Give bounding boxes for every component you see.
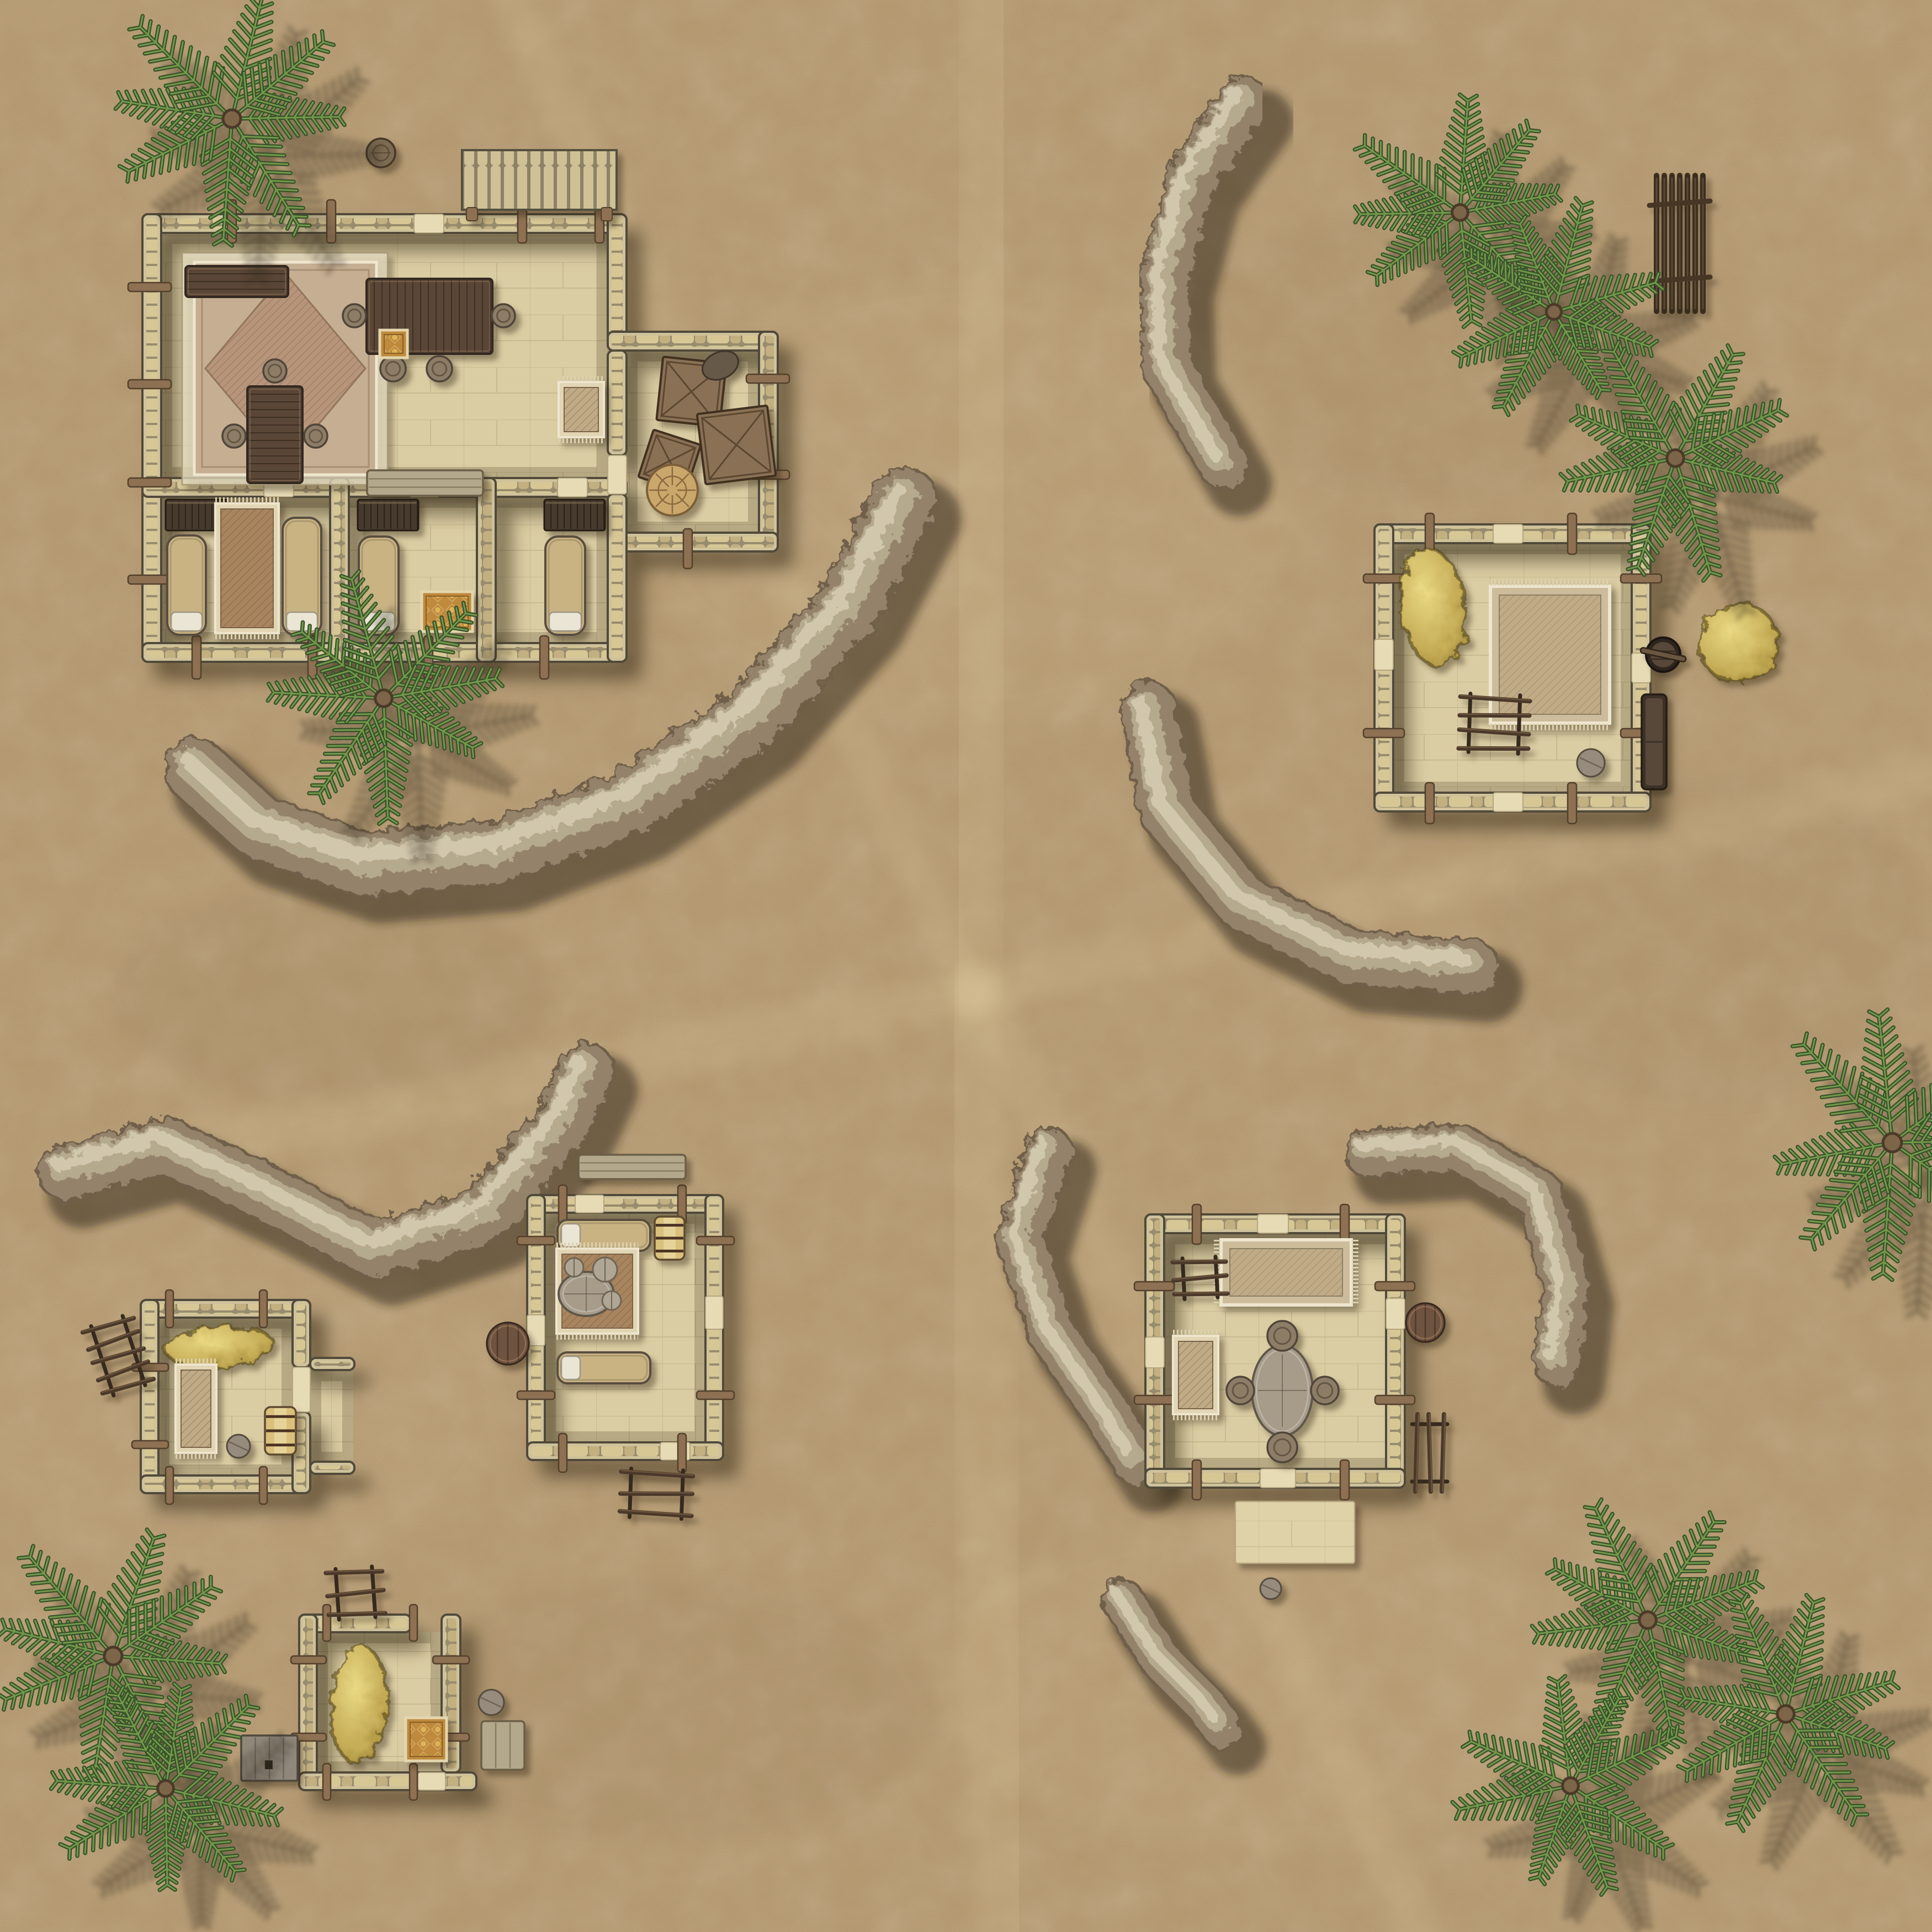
round-basket [647, 465, 698, 516]
chair [263, 359, 286, 383]
wall-segment [310, 1462, 354, 1474]
door-sill [1386, 1298, 1405, 1329]
wood-beam [1192, 1460, 1201, 1500]
wall-segment [299, 1615, 317, 1790]
chair [1267, 1432, 1297, 1462]
wood-beam [746, 374, 789, 383]
bed [545, 537, 585, 635]
wood-beam [1363, 574, 1404, 583]
wood-beam [559, 1185, 567, 1224]
wood-beam [323, 1764, 331, 1800]
wall-segment [608, 214, 627, 351]
cushion [593, 1257, 617, 1282]
stone-seat [479, 1690, 504, 1715]
door-sill [1374, 639, 1393, 670]
chair [492, 304, 515, 327]
large-rug [1217, 1240, 1355, 1305]
wood-beam [433, 1656, 469, 1664]
wall-shelf [544, 500, 605, 530]
wood-beam [259, 1467, 267, 1504]
fence-section [1412, 1414, 1447, 1492]
wall-segment [330, 478, 349, 662]
bench [367, 470, 483, 496]
crate [697, 406, 776, 485]
wood-beam [166, 1290, 173, 1328]
wood-beam [128, 575, 171, 584]
wall-segment [1386, 1214, 1405, 1488]
door-sill [414, 214, 444, 233]
wood-beam [540, 636, 549, 679]
door-sill [558, 478, 587, 497]
chair [222, 424, 246, 448]
large-rug [1490, 582, 1610, 727]
bench [481, 1721, 524, 1770]
chair [304, 424, 327, 448]
door-sill [527, 1315, 545, 1346]
door-sill [1260, 1469, 1296, 1488]
bench [578, 1155, 686, 1179]
chair [1267, 1321, 1297, 1351]
dwelling-south-doorways [418, 1772, 445, 1790]
dwelling-west-doorways [293, 1367, 310, 1412]
stone-patio [1235, 1501, 1355, 1563]
cushion [602, 1291, 621, 1310]
oval-stone-table [1252, 1345, 1313, 1436]
wall-segment [527, 1442, 723, 1460]
door-sill [293, 1367, 310, 1412]
wood-beam [1568, 513, 1577, 554]
chair [427, 356, 452, 381]
small-square-rug [380, 330, 407, 358]
round-table [1406, 1303, 1445, 1342]
bed [167, 535, 206, 635]
door-sill [1257, 1214, 1288, 1233]
wall-segment [608, 332, 778, 351]
head-table [185, 266, 288, 297]
bed [558, 1352, 650, 1383]
door-sill [1493, 793, 1523, 811]
wood-beam [1340, 1460, 1349, 1500]
wood-beam [1621, 574, 1662, 583]
trough [1642, 694, 1666, 789]
chair [380, 356, 406, 381]
wood-beam [1192, 1204, 1201, 1244]
wood-beam [192, 636, 201, 679]
wooden-rack [1172, 1256, 1228, 1300]
wall-segment [141, 1300, 158, 1493]
barrel [265, 1407, 296, 1455]
wood-beam [1375, 1395, 1415, 1404]
wood-beam [132, 1441, 168, 1448]
wall-segment [608, 351, 627, 455]
wood-beam [410, 1764, 417, 1800]
slatted-awning [462, 150, 617, 221]
floor [310, 1370, 353, 1463]
wood-beam [1425, 783, 1434, 824]
bedroom-runner-rug [215, 500, 279, 636]
wood-beam [1134, 1282, 1174, 1291]
door-sill [418, 1772, 445, 1790]
door-sill [1493, 524, 1523, 543]
wood-beam [517, 1391, 555, 1399]
wood-beam [1363, 729, 1404, 737]
palisade-fence [1649, 176, 1710, 311]
door-sill [608, 455, 627, 494]
wall-segment [310, 1358, 354, 1370]
bed [283, 518, 321, 635]
side-table [247, 386, 302, 483]
wood-beam [1134, 1395, 1174, 1404]
battle-map: Desert Village Battle Map [0, 0, 1932, 1932]
door-sill [705, 1296, 723, 1329]
stone-seat [1577, 749, 1605, 777]
wood-beam [128, 478, 171, 487]
hall-rug [559, 379, 604, 440]
round-table [487, 1323, 529, 1365]
wood-beam [559, 1434, 567, 1472]
wooden-rack [620, 1468, 693, 1519]
wood-beam [1375, 1282, 1415, 1291]
wood-beam [683, 529, 692, 569]
wood-beam [1568, 783, 1577, 824]
desert-village-map-canvas [0, 0, 1932, 1932]
wood-beam [128, 283, 171, 291]
wood-beam [517, 1236, 555, 1245]
wall-segment [608, 494, 627, 662]
wall-segment [142, 214, 161, 662]
wood-beam [323, 1605, 331, 1641]
wall-segment [527, 1195, 723, 1213]
rug [176, 1361, 216, 1456]
wood-beam [291, 1656, 326, 1664]
wall-shelf [358, 500, 418, 530]
wood-beam [697, 1236, 734, 1245]
chair [1227, 1377, 1254, 1404]
wall-segment [477, 478, 496, 662]
ornate-rug [406, 1718, 447, 1761]
door-sill [575, 1195, 604, 1213]
barrel [655, 1217, 684, 1260]
wood-beam [697, 1391, 734, 1399]
wood-beam [678, 1434, 686, 1472]
chair [1311, 1377, 1339, 1404]
wall-segment [293, 1300, 310, 1367]
door-sill [1145, 1337, 1164, 1368]
wood-beam [166, 1467, 173, 1504]
wood-beam [410, 1605, 417, 1641]
chair [343, 304, 366, 327]
cushion [565, 1258, 583, 1277]
wood-beam [259, 1290, 267, 1328]
stone-seat [1260, 1578, 1281, 1599]
stone-seat [227, 1435, 250, 1458]
small-rug [1173, 1333, 1218, 1418]
wood-beam [128, 380, 171, 389]
